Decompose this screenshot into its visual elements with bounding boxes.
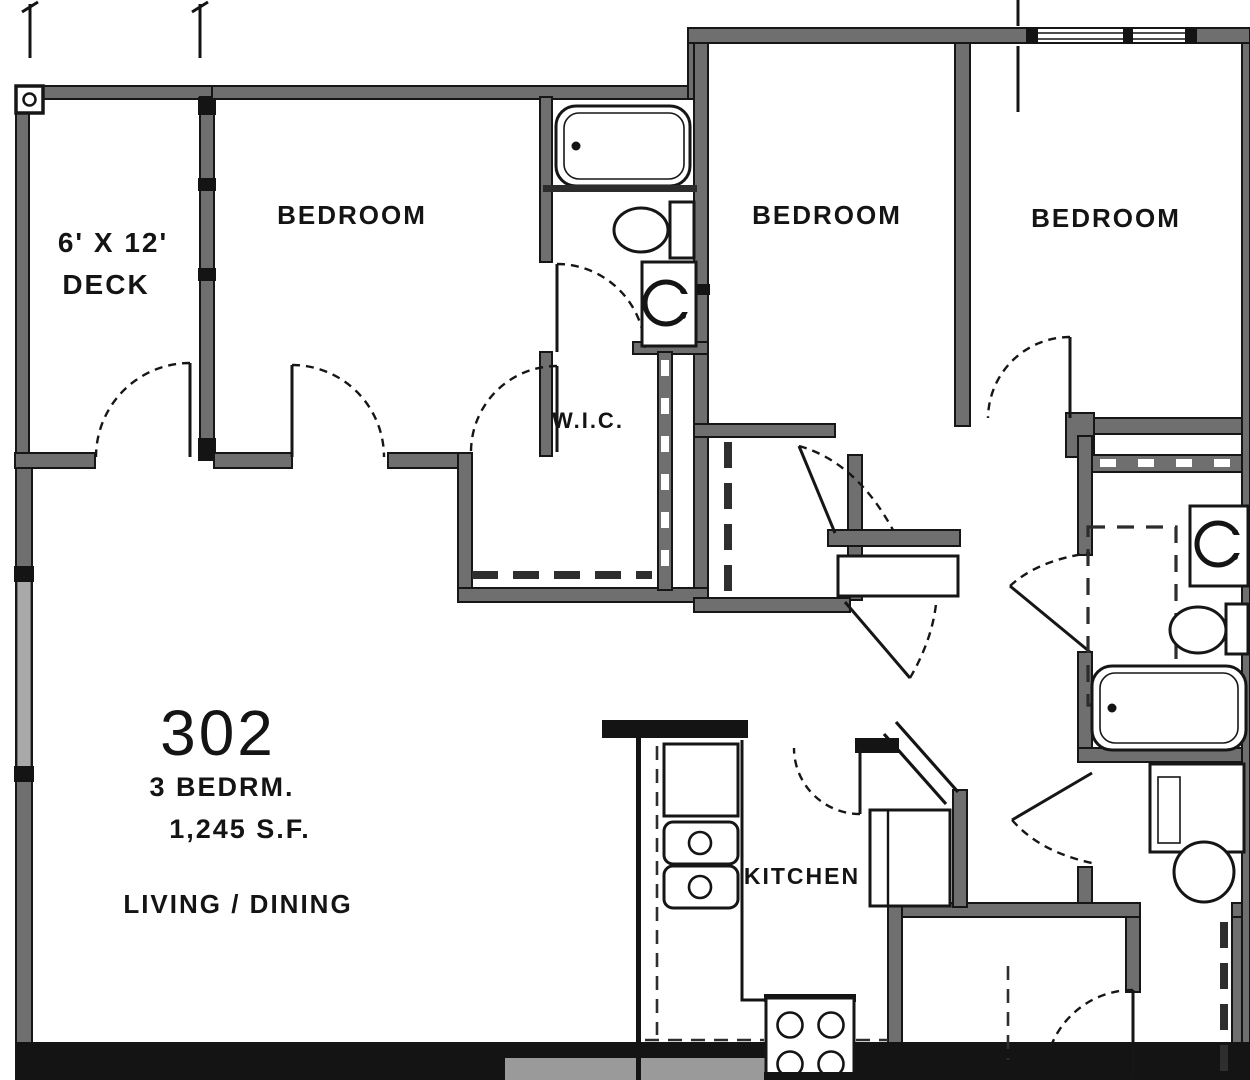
kitchen-angled-wall <box>884 722 958 804</box>
door-header-wall <box>855 738 899 753</box>
bedroom2-south-wall <box>694 424 835 437</box>
deck-corner-post <box>16 86 43 113</box>
wall-segment <box>214 453 292 468</box>
bath2-west-wall <box>1078 652 1092 762</box>
doors <box>96 264 1133 1078</box>
hall-niche-wall <box>828 530 960 546</box>
bedroom2-door <box>799 446 893 533</box>
dimension-tick <box>22 2 38 58</box>
hall-door <box>845 602 936 678</box>
bath2-north-chase-wall <box>1092 455 1250 472</box>
unit-type: 3 BEDRM. <box>149 772 294 802</box>
deck-top-wall <box>16 86 212 99</box>
left-window <box>18 582 30 766</box>
toilet-icon <box>614 202 694 258</box>
dimension-tick <box>192 2 208 58</box>
window-mullion <box>198 178 216 191</box>
wic-label: W.I.C. <box>552 408 624 433</box>
bathtub-icon <box>556 106 690 186</box>
bedroom1-bath1-wall <box>540 97 552 262</box>
deck-dimension-label: 6' X 12' <box>58 227 168 258</box>
bathtub-icon <box>1092 666 1246 750</box>
bath1-door <box>557 264 645 352</box>
kitchen-door <box>794 748 860 814</box>
wall-segment <box>15 453 95 468</box>
bath1-fixtures <box>543 106 697 346</box>
laundry-door <box>1012 773 1092 863</box>
refrigerator-icon <box>664 744 738 816</box>
window-post <box>1026 27 1038 44</box>
kitchen-east-wall-upper <box>953 790 967 907</box>
tub-front-wall <box>543 185 697 192</box>
kitchen-counter-block <box>870 810 950 906</box>
bedroom2-bedroom3-divider <box>955 43 970 426</box>
wic-west-wall <box>458 453 472 602</box>
window-glazing <box>1036 29 1124 42</box>
deck-label: DECK <box>62 269 149 300</box>
living-dining-label: LIVING / DINING <box>123 889 352 919</box>
bath2-door <box>1010 553 1090 652</box>
sink-vanity-icon <box>642 262 696 346</box>
window-post <box>14 566 34 582</box>
bedroom2-label: BEDROOM <box>752 200 902 230</box>
room-labels: 6' X 12' DECK BEDROOM BEDROOM BEDROOM W.… <box>58 200 1181 919</box>
laundry-west-wall <box>1078 867 1092 905</box>
top-exterior-wall-left <box>212 86 700 99</box>
bedroom1-label: BEDROOM <box>277 200 427 230</box>
bedroom3-door <box>988 337 1070 418</box>
kitchen-west-wall-line <box>636 738 641 1080</box>
bedroom1-door <box>292 365 384 457</box>
entry-closet-jamb <box>1126 917 1140 992</box>
stove-icon <box>764 994 856 1080</box>
window-post <box>1185 27 1197 44</box>
kitchen-halfwall <box>602 720 748 738</box>
deck-door <box>96 363 190 457</box>
hall-cased-opening <box>838 556 958 596</box>
washer-dryer-icon <box>1150 764 1244 902</box>
deck-left-wall <box>16 86 29 462</box>
kitchen-label: KITCHEN <box>744 863 860 889</box>
bedroom3-label: BEDROOM <box>1031 203 1181 233</box>
floor-plan-drawing: 6' X 12' DECK BEDROOM BEDROOM BEDROOM W.… <box>0 0 1250 1080</box>
plumbing-chase-wall <box>658 352 672 590</box>
double-sink-icon <box>664 822 738 908</box>
top-window <box>1026 27 1197 44</box>
bath2-west-wall <box>1078 436 1092 555</box>
bath2-fixtures <box>1088 506 1248 902</box>
unit-number: 302 <box>160 697 276 769</box>
window-post <box>1123 27 1133 44</box>
toilet-icon <box>1170 604 1248 654</box>
window-mullion <box>198 268 216 281</box>
hall-wall <box>694 598 850 612</box>
unit-area: 1,245 S.F. <box>169 814 311 844</box>
window-glazing <box>1132 29 1186 42</box>
window-post <box>14 766 34 782</box>
floor-plan-unit-302: 6' X 12' DECK BEDROOM BEDROOM BEDROOM W.… <box>0 0 1250 1080</box>
sink-vanity-icon <box>1190 506 1248 586</box>
